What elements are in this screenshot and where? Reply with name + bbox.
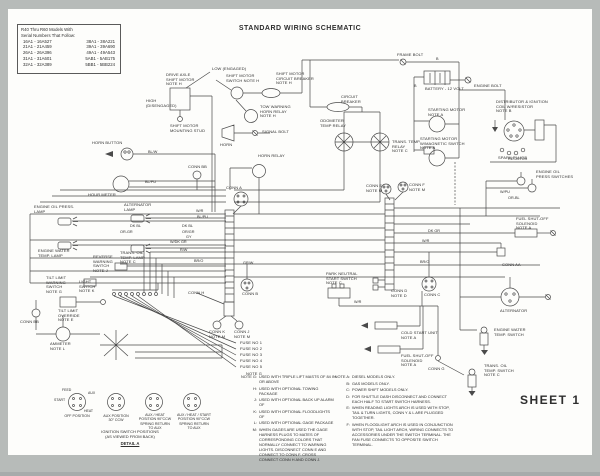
label-alternator-lamp: ALTERNATOR LAMP bbox=[124, 203, 151, 212]
label-hour-meter: HOUR METER bbox=[88, 193, 116, 198]
ignition-position-caption: AUX / HEAT / START POSITION 90°CCW SPRIN… bbox=[177, 413, 211, 431]
label-reverse-warning-switch: REVERSE WARNING SWITCH NOTE J bbox=[93, 255, 113, 274]
label-conn-b: CONN B bbox=[242, 292, 258, 297]
serial-number-rows: 16A1 - 16A52738A1 - 38A22121A1 - 21A4593… bbox=[21, 39, 117, 68]
label-horn-relay: HORN RELAY bbox=[258, 154, 285, 159]
label-odometer-temp-relay: ODOMETER TEMP RELAY bbox=[320, 119, 346, 128]
note-item: L:USED WITH OPTIONAL GAGE PACKAGE bbox=[241, 420, 336, 425]
notes-column-right: NOTE A:DIESEL MODELS ONLY.B:GAS MODELS O… bbox=[334, 374, 454, 448]
label-engine-oil-press-lamp: ENGINE OIL PRESS. LAMP bbox=[34, 205, 74, 214]
wire-label: GR/W bbox=[243, 261, 253, 265]
label-distributor-ignition-coil: DISTRIBUTOR & IGNITION COIL W/RESISTOR N… bbox=[496, 100, 548, 114]
label-trans-oil-temp-switch: TRANS. OIL TEMP. SWITCH NOTE C bbox=[484, 364, 514, 378]
note-item: B:GAS MODELS ONLY. bbox=[334, 381, 454, 386]
note-item: E:WHEN READING LIGHTS ARCH IS USED WITH … bbox=[334, 405, 454, 420]
label-engine-water-temp-switch: ENGINE WATER TEMP. SWITCH bbox=[494, 328, 526, 337]
note-item: H:USED WITH OPTIONAL TOWING PACKAGE bbox=[241, 386, 336, 396]
schematic-frame: STANDARD WIRING SCHEMATIC R40 Thru R60 M… bbox=[0, 0, 600, 476]
ignition-position-caption: OFF POSITION bbox=[64, 414, 89, 418]
note-key: D: bbox=[334, 394, 350, 404]
ignition-dial-label: HEAT bbox=[84, 409, 93, 413]
note-text: WHEN READING LIGHTS ARCH IS USED WITH ST… bbox=[352, 405, 454, 420]
note-item: M:WHEN GAGES ARE USED THE GAGE HARNESS P… bbox=[241, 427, 336, 462]
label-alternator: ALTERNATOR bbox=[500, 309, 527, 314]
detail-a-label: DETAIL A bbox=[121, 441, 140, 446]
note-text: USED WITH OPTIONAL BACK UP ALARM OF bbox=[259, 397, 336, 407]
ignition-dial-label: START bbox=[54, 398, 65, 402]
note-item: C:POWER SHIFT MODELS ONLY. bbox=[334, 387, 454, 392]
wire-label: BL/PU bbox=[197, 215, 208, 219]
note-key: B: bbox=[334, 381, 350, 386]
label-fuse-3: FUSE NO 3 bbox=[240, 353, 262, 358]
note-key: L: bbox=[241, 420, 257, 425]
label-conn-c: CONN C bbox=[424, 293, 440, 298]
note-key: C: bbox=[334, 387, 350, 392]
wire-label: W/PU bbox=[500, 190, 510, 194]
label-conn-f: CONN F NOTE M bbox=[409, 183, 425, 192]
note-text: WHEN GAGES ARE USED THE GAGE HARNESS PLU… bbox=[259, 427, 336, 462]
label-conn-aa: CONN AA bbox=[502, 263, 521, 268]
label-shift-motor-switch: SHIFT MOTOR SWITCH NOTE H bbox=[226, 74, 259, 83]
note-text: USED WITH TRIPLE LIFT MASTS OF 84 IN OR … bbox=[259, 374, 336, 384]
note-text: USED WITH OPTIONAL TOWING PACKAGE bbox=[259, 386, 336, 396]
wire-label: RESISTOR bbox=[508, 157, 527, 161]
label-engine-water-temp-lamp: ENGINE WATER TEMP. LAMP bbox=[38, 249, 70, 258]
label-starting-motor-magnetic: STARTING MOTOR W/MAGNETIC SWITCH NOTE A bbox=[420, 137, 465, 151]
label-horn-button: HORN BUTTON bbox=[92, 141, 122, 146]
label-signal-bolt: SIGNAL BOLT bbox=[262, 130, 289, 135]
label-fuse-2: FUSE NO 2 bbox=[240, 347, 262, 352]
wire-label: BR/O bbox=[420, 260, 429, 264]
note-key: F: bbox=[334, 422, 350, 447]
label-engine-bolt: ENGINE BOLT bbox=[474, 84, 502, 89]
note-item: J:USED WITH OPTIONAL BACK UP ALARM OF bbox=[241, 397, 336, 407]
ignition-dial-label: AUX bbox=[88, 391, 95, 395]
note-text: USED WITH OPTIONAL GAGE PACKAGE bbox=[259, 420, 336, 425]
wire-label: DK BL bbox=[130, 224, 141, 228]
note-text: POWER SHIFT MODELS ONLY. bbox=[352, 387, 454, 392]
label-cold-start-unit: COLD START UNIT NOTE A bbox=[401, 331, 438, 340]
note-key: E: bbox=[334, 405, 350, 420]
label-frame-bolt: FRAME BOLT bbox=[397, 53, 423, 58]
label-tow-warning-horn-relay: TOW WARNING HORN RELAY NOTE H bbox=[260, 105, 291, 119]
note-text: GAS MODELS ONLY. bbox=[352, 381, 454, 386]
wire-label: B bbox=[414, 84, 417, 88]
label-conn-j: CONN J NOTE M bbox=[234, 330, 250, 339]
note-text: DIESEL MODELS ONLY. bbox=[352, 374, 454, 379]
note-key: H: bbox=[241, 386, 257, 396]
notes-column-left: NOTE G:USED WITH TRIPLE LIFT MASTS OF 84… bbox=[241, 374, 336, 463]
label-park-neutral-start-switch: PARK NEUTRAL START SWITCH NOTE C bbox=[326, 272, 358, 286]
note-text: FOR SHUTTLE DASH DISCONNECT AND CONNECT … bbox=[352, 394, 454, 404]
label-tilt-limit-warning-switch: TILT LIMIT WARNING SWITCH NOTE G bbox=[46, 276, 66, 295]
serial-number: 5BB1 - 5BB224 bbox=[85, 62, 115, 68]
wire-label: W/R bbox=[354, 300, 361, 304]
label-light-switch: LIGHT SWITCH NOTE K bbox=[79, 280, 95, 294]
label-conn-bb-mid: CONN BB bbox=[188, 165, 207, 170]
wire-label: W/R bbox=[422, 239, 429, 243]
label-starting-motor: STARTING MOTOR NOTE A bbox=[428, 108, 465, 117]
ignition-position-caption: AUX POSITION 30° CCW bbox=[103, 414, 129, 423]
wire-label: BL/PU bbox=[145, 180, 156, 184]
label-shift-motor-circuit-breaker: SHIFT MOTOR CIRCUIT BREAKER NOTE H bbox=[276, 72, 314, 86]
note-key: NOTE G: bbox=[241, 374, 257, 384]
label-shift-motor-mounting-stud: SHIFT MOTOR MOUNTING STUD bbox=[170, 124, 205, 133]
note-item: NOTE G:USED WITH TRIPLE LIFT MASTS OF 84… bbox=[241, 374, 336, 384]
note-key: NOTE A: bbox=[334, 374, 350, 379]
wire-label: R/W bbox=[180, 248, 187, 252]
label-high-disengaged: HIGH (DISENGAGED) bbox=[146, 99, 177, 108]
ignition-dial-label: FEED bbox=[62, 388, 71, 392]
label-ammeter: AMMETER NOTE L bbox=[50, 342, 71, 351]
label-drive-axle-shift-motor: DRIVE AXLE SHIFT MOTOR NOTE H bbox=[166, 73, 195, 87]
note-item: K:USED WITH OPTIONAL FLOODLIGHTS OF bbox=[241, 409, 336, 419]
wire-label: GY bbox=[186, 235, 192, 239]
label-low-engaged: LOW (ENGAGED) bbox=[212, 67, 246, 72]
label-conn-e: CONN E NOTE M bbox=[366, 184, 382, 193]
label-conn-bb-left: CONN BB bbox=[20, 320, 39, 325]
wire-label: OR/GR bbox=[182, 230, 194, 234]
label-trans-temp-relay: TRANS. TEMP. RELAY NOTE C bbox=[392, 140, 421, 154]
wire-label: B bbox=[436, 57, 439, 61]
label-conn-g: CONN G bbox=[428, 367, 445, 372]
label-trans-oil-temp-lamp: TRANS. OIL TEMP. LAMP NOTE C bbox=[120, 251, 145, 265]
wire-label: OR-BL bbox=[508, 196, 520, 200]
sheet-label: SHEET 1 bbox=[520, 393, 581, 407]
label-battery: BATTERY - 12 VOLT bbox=[425, 87, 464, 92]
label-fuse-4: FUSE NO 4 bbox=[240, 359, 262, 364]
wire-label: BR/O bbox=[194, 259, 203, 263]
note-key: M: bbox=[241, 427, 257, 462]
bottom-edge-bar bbox=[0, 472, 600, 476]
label-horn: HORN bbox=[220, 143, 232, 148]
note-key: K: bbox=[241, 409, 257, 419]
note-item: NOTE A:DIESEL MODELS ONLY. bbox=[334, 374, 454, 379]
ignition-position-caption: AUX / HEAT POSITION 90°CCW SPRING RETURN… bbox=[139, 413, 171, 431]
label-circuit-breaker: CIRCUIT BREAKER bbox=[341, 95, 361, 104]
note-text: USED WITH OPTIONAL FLOODLIGHTS OF bbox=[259, 409, 336, 419]
wire-label: BL/W bbox=[148, 150, 157, 154]
label-engine-oil-press-switches: ENGINE OIL PRESS SWITCHES bbox=[536, 170, 573, 179]
note-item: D:FOR SHUTTLE DASH DISCONNECT AND CONNEC… bbox=[334, 394, 454, 404]
wire-label: DK BL bbox=[182, 224, 193, 228]
label-conn-a: CONN A bbox=[226, 186, 242, 191]
wire-label: W/DK GR bbox=[170, 240, 187, 244]
label-fuse-1: FUSE NO 1 bbox=[240, 341, 262, 346]
note-item: F:WHEN FLOODLIGHT ARCH IS USED IN CONJUN… bbox=[334, 422, 454, 447]
note-text: WHEN FLOODLIGHT ARCH IS USED IN CONJUNCT… bbox=[352, 422, 454, 447]
note-key: J: bbox=[241, 397, 257, 407]
wire-label: DK GR bbox=[428, 229, 440, 233]
wire-label: OR-GR bbox=[120, 230, 133, 234]
serial-number-box: R40 Thru R60 Models With Serial Numbers … bbox=[17, 24, 121, 74]
label-conn-k: CONN K NOTE M bbox=[209, 330, 225, 339]
serial-number-row: 32A1 - 32A3895BB1 - 5BB224 bbox=[21, 62, 117, 68]
label-fuel-shut-off-solenoid-2: FUEL SHUT-OFF SOLENOID NOTE A bbox=[516, 217, 549, 231]
wire-label: W/R bbox=[196, 209, 203, 213]
label-conn-d: CONN D NOTE D bbox=[391, 289, 407, 298]
label-tilt-limit-override: TILT LIMIT OVERRIDE NOTE E bbox=[58, 309, 80, 323]
serial-number: 32A1 - 32A389 bbox=[23, 62, 52, 68]
label-conn-h: CONN H bbox=[188, 291, 204, 296]
label-fuse-5: FUSE NO 5 bbox=[240, 365, 262, 370]
